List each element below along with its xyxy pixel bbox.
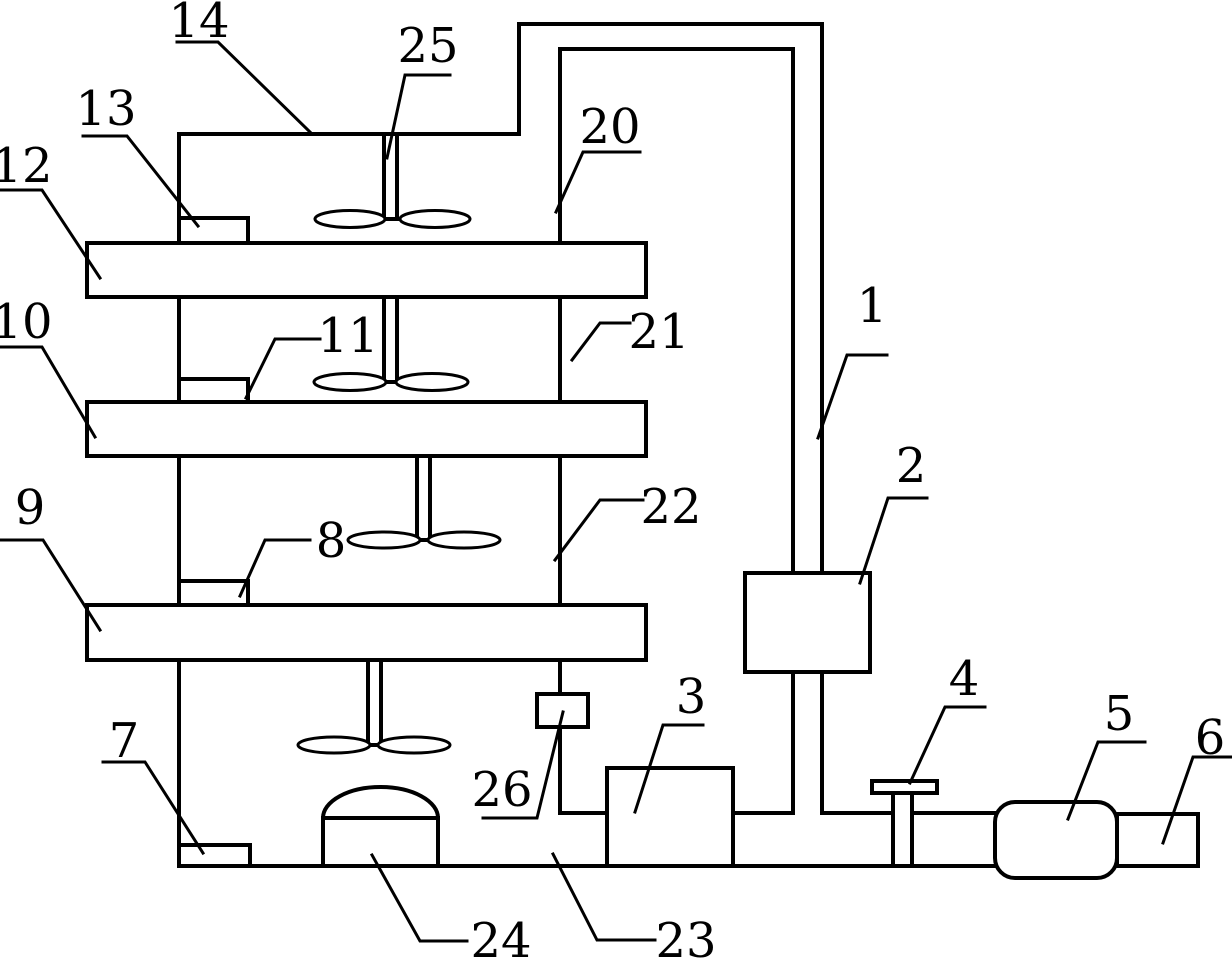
- label-22-leader-line: [555, 500, 643, 560]
- label-5: 5: [1104, 686, 1135, 742]
- stirrer-blade-1-right: [400, 211, 470, 228]
- stirrer-blade-1-left: [315, 211, 385, 228]
- device-box-3: [607, 768, 733, 866]
- label-2: 2: [896, 438, 927, 494]
- wall-box-11: [179, 379, 248, 402]
- label-23: 23: [655, 913, 716, 961]
- label-11: 11: [317, 308, 378, 364]
- label-24: 24: [470, 913, 531, 961]
- stirrer-shaft-3: [417, 456, 430, 540]
- valve-handle-4: [872, 781, 937, 793]
- label-6: 6: [1195, 710, 1226, 766]
- outlet-stub-6: [1117, 814, 1198, 866]
- label-14: 14: [168, 0, 229, 49]
- label-7-leader-line: [103, 762, 203, 853]
- label-11-leader-line: [246, 339, 320, 398]
- label-8-leader-line: [240, 540, 310, 596]
- stirrer-blade-3-left: [348, 532, 420, 548]
- label-3: 3: [676, 669, 707, 725]
- stirrer-blade-2-right: [396, 374, 468, 391]
- label-21-leader-line: [572, 323, 630, 360]
- shelf-tray-lower-9: [87, 605, 646, 660]
- label-22: 22: [640, 479, 701, 535]
- diagram-page: 123456789101112131420212223242526: [0, 0, 1232, 961]
- label-20-leader-line: [556, 152, 640, 212]
- label-12: 12: [0, 138, 53, 194]
- label-20: 20: [579, 99, 640, 155]
- label-10: 10: [0, 294, 53, 350]
- shelf-tray-middle-10: [87, 402, 646, 456]
- stirrer-blade-4-right: [378, 737, 450, 753]
- label-13: 13: [75, 81, 136, 137]
- label-1-leader-line: [818, 355, 887, 438]
- label-7: 7: [109, 713, 140, 769]
- wall-box-7: [179, 845, 250, 866]
- shelf-tray-upper-12: [87, 243, 646, 297]
- label-8: 8: [316, 513, 347, 569]
- label-26: 26: [471, 762, 532, 818]
- diagram-svg: 123456789101112131420212223242526: [0, 0, 1232, 961]
- label-9: 9: [15, 480, 46, 536]
- wall-box-8: [179, 581, 248, 605]
- label-4: 4: [949, 651, 980, 707]
- label-21: 21: [628, 304, 689, 360]
- wall-box-13: [179, 218, 248, 243]
- label-25: 25: [397, 18, 458, 74]
- label-2-leader-line: [860, 498, 927, 583]
- stirrer-blade-3-right: [428, 532, 500, 548]
- stirrer-blade-2-left: [314, 374, 386, 391]
- stirrer-shaft-4: [368, 660, 381, 745]
- stirrer-shaft-2: [384, 297, 397, 382]
- label-14-leader-line: [177, 42, 310, 132]
- pump-body-5: [995, 802, 1117, 878]
- label-4-leader-line: [910, 707, 985, 783]
- label-10-leader-line: [0, 347, 95, 437]
- stirrer-blade-4-left: [298, 737, 370, 753]
- device-box-2: [745, 573, 870, 672]
- label-1: 1: [857, 278, 888, 334]
- bottom-dome-24: [323, 787, 438, 866]
